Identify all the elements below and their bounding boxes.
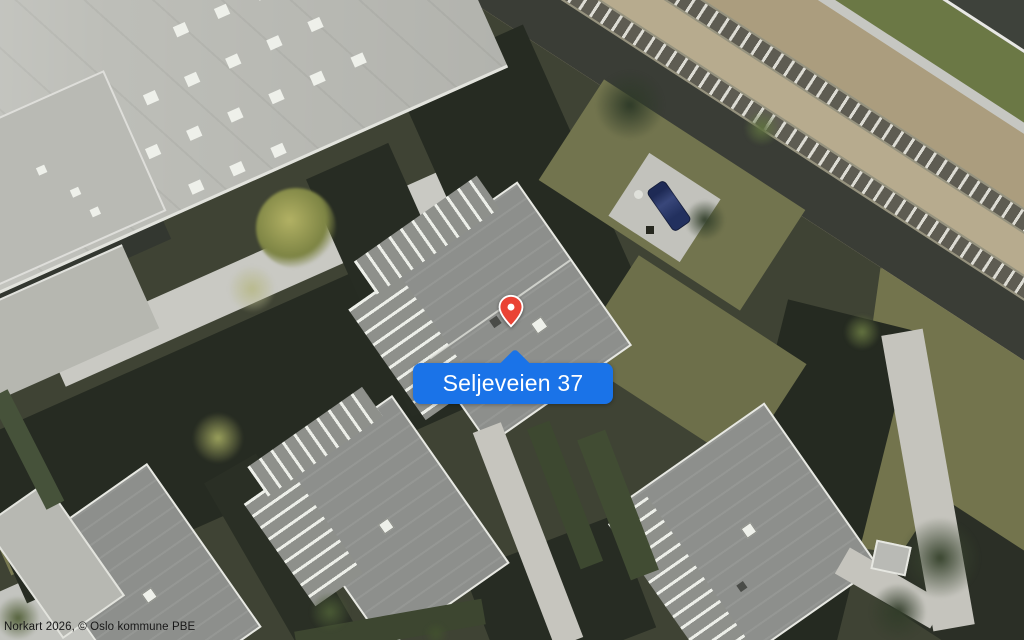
tree-canopy bbox=[228, 265, 276, 313]
roof-skylight bbox=[378, 518, 395, 535]
roof-vent bbox=[736, 581, 747, 592]
tree-canopy bbox=[310, 592, 350, 632]
tree-canopy bbox=[870, 584, 926, 640]
roof-skylight bbox=[741, 522, 758, 539]
roof-skylights bbox=[36, 165, 47, 176]
tree-canopy bbox=[192, 412, 244, 464]
map-attribution: Norkart 2026, © Oslo kommune PBE bbox=[4, 621, 195, 633]
pin-dot bbox=[508, 304, 515, 311]
white-object bbox=[634, 190, 643, 199]
label-text: Seljeveien 37 bbox=[413, 363, 613, 404]
tree-canopy bbox=[256, 188, 336, 268]
tree-canopy bbox=[744, 110, 780, 146]
map-canvas[interactable]: Seljeveien 37 Norkart 2026, © Oslo kommu… bbox=[0, 0, 1024, 640]
tree-canopy bbox=[685, 200, 725, 240]
tree-canopy bbox=[900, 518, 980, 598]
address-label[interactable]: Seljeveien 37 bbox=[413, 363, 613, 404]
bin bbox=[646, 226, 654, 234]
tree-canopy bbox=[596, 71, 664, 139]
roof-skylight bbox=[530, 316, 548, 334]
location-pin-icon[interactable] bbox=[498, 294, 524, 328]
tree-canopy bbox=[844, 314, 880, 350]
tree-canopy bbox=[424, 622, 448, 640]
roof-skylight bbox=[141, 587, 158, 604]
pin-body bbox=[500, 296, 523, 326]
